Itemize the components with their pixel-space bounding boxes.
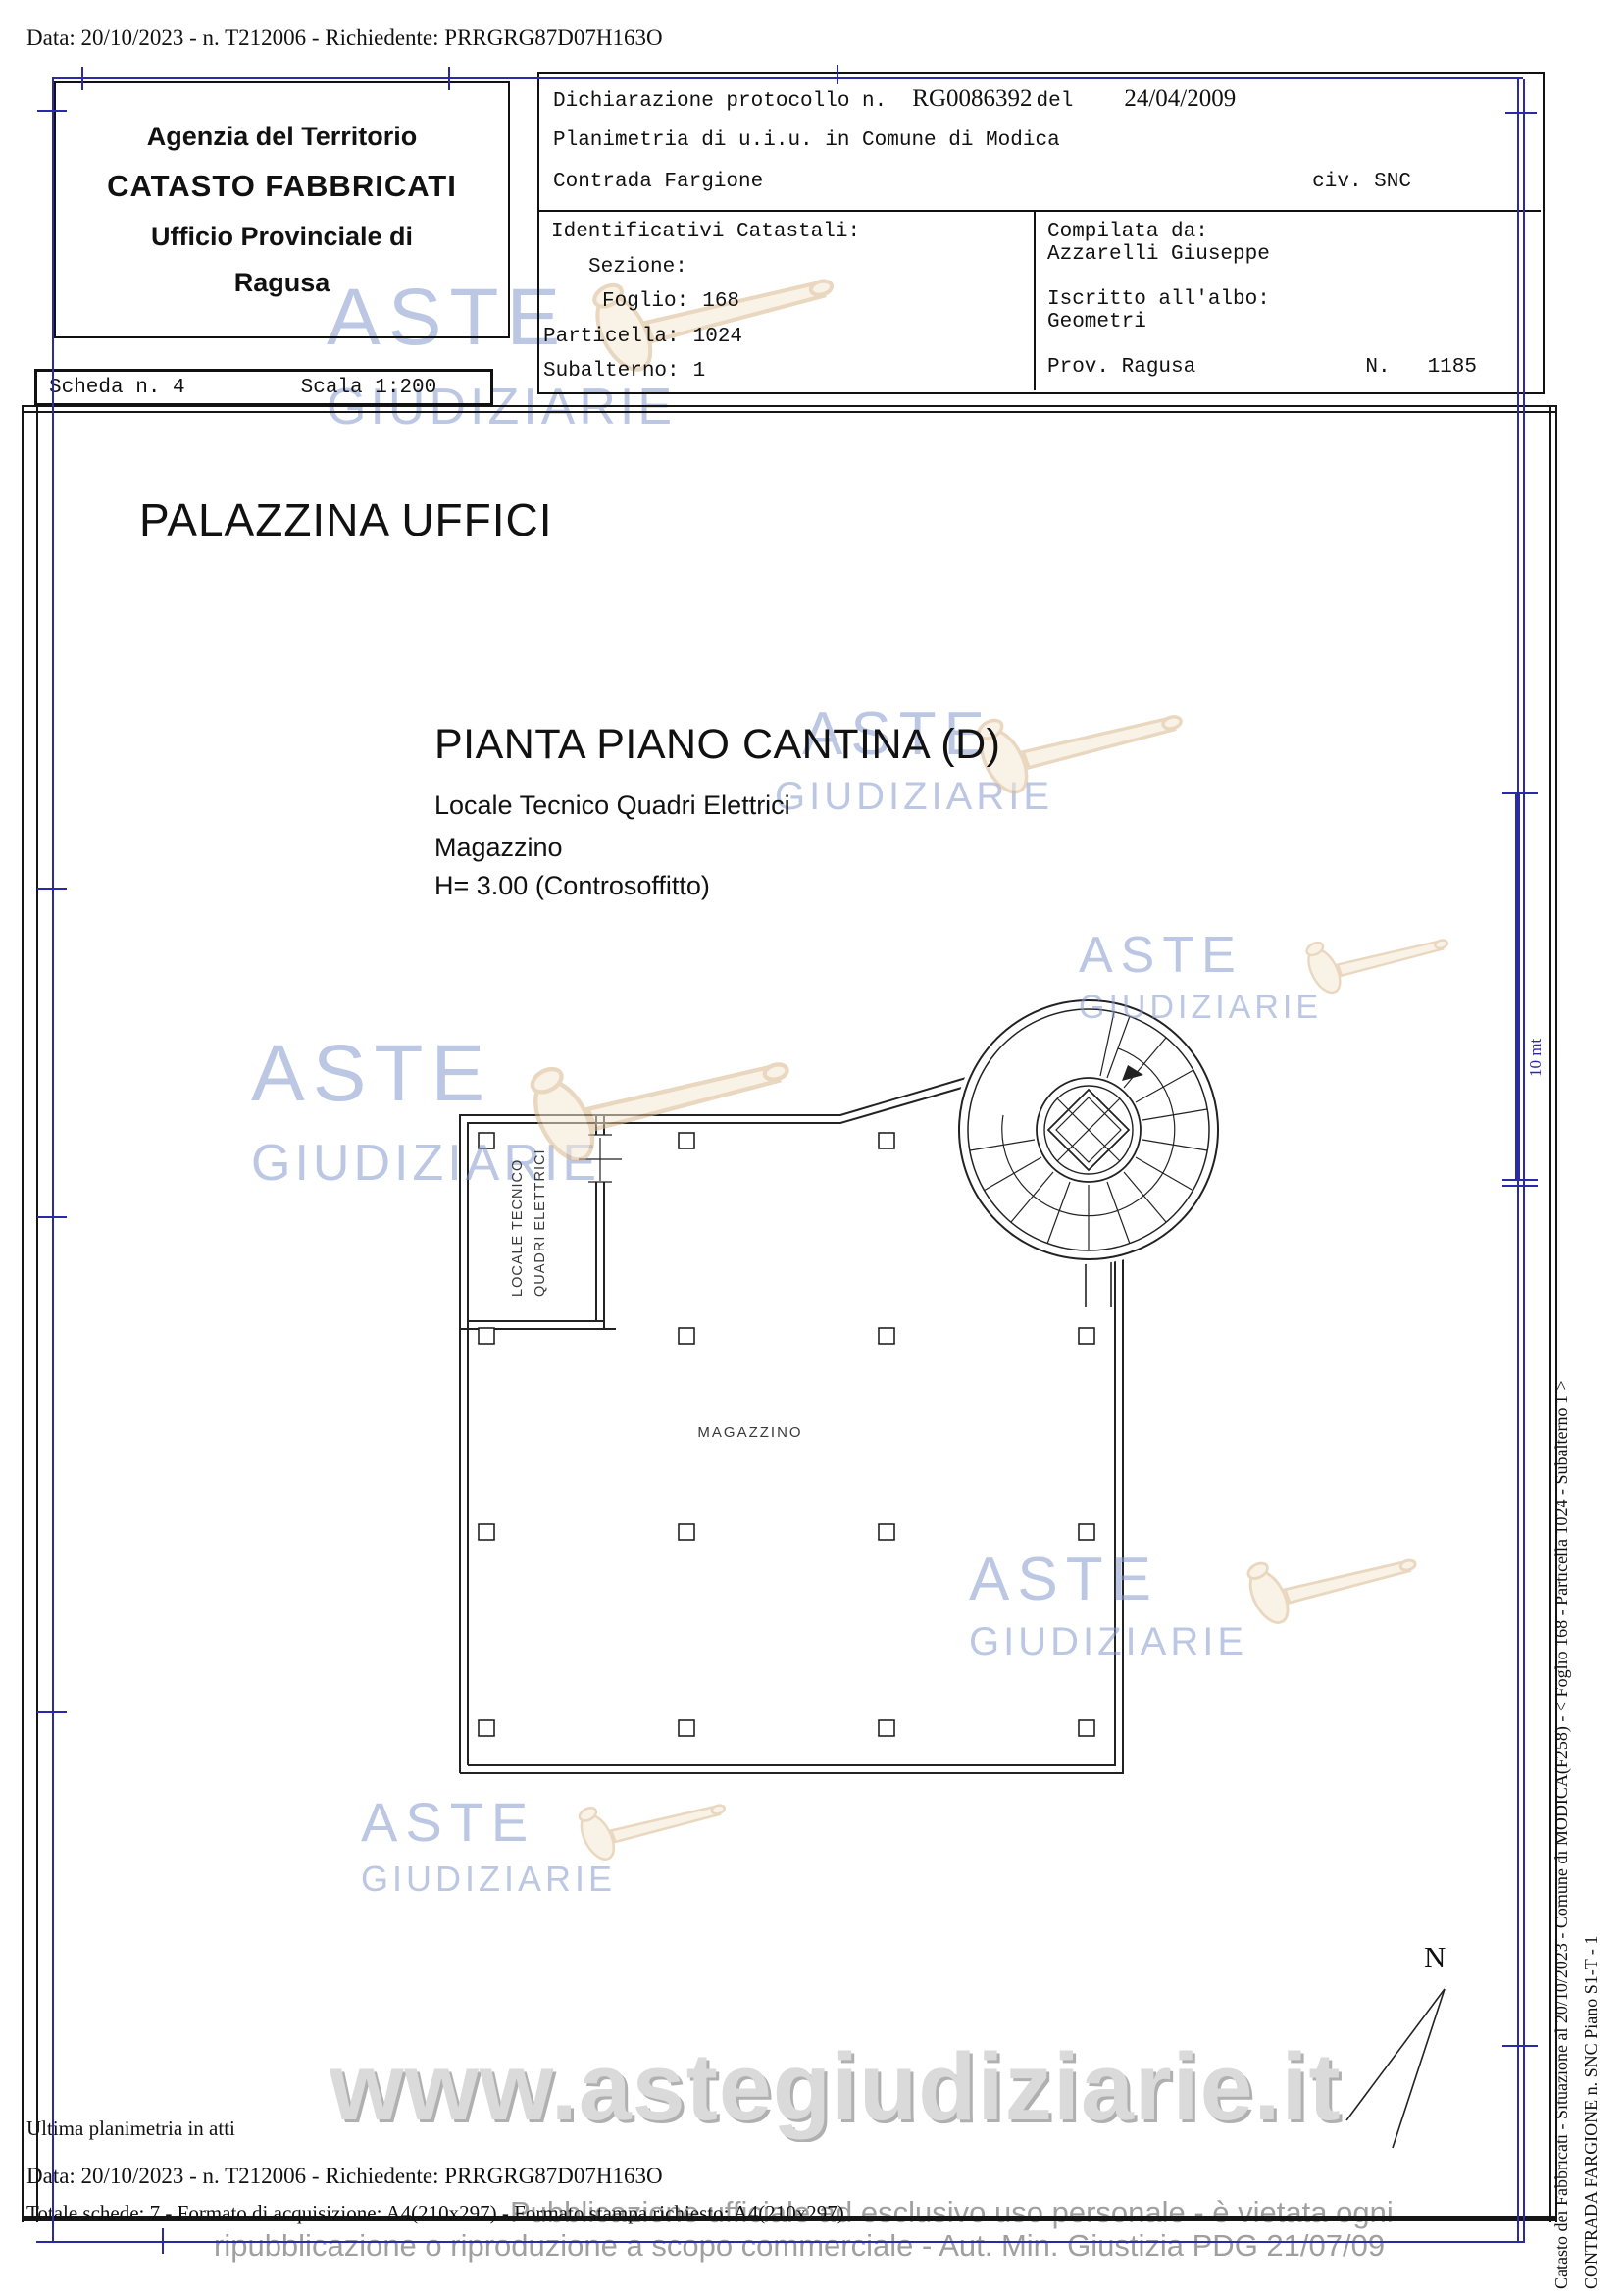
scheda-box: Scheda n. 4 Scala 1:200 (34, 369, 493, 406)
plan-subtitle-2: Magazzino (434, 833, 563, 863)
footer-totale-schede: Totale schede: 7 - Formato di acquisizio… (26, 2201, 844, 2225)
prov-label: Prov. Ragusa (1047, 356, 1195, 379)
catasto-fabbricati-title: CATASTO FABBRICATI (107, 160, 457, 213)
office-province: Ragusa (234, 260, 330, 306)
address-value: Contrada Fargione (553, 171, 763, 193)
frame-top-inner (22, 411, 1555, 413)
office-line: Ufficio Provinciale di (151, 214, 413, 260)
content-layer: Data: 20/10/2023 - n. T212006 - Richiede… (0, 0, 1624, 2296)
protocol-number: RG0086392 (912, 85, 1032, 113)
north-label: N (1424, 1940, 1446, 1975)
scheda-number: Scheda n. 4 (49, 377, 185, 399)
agency-name: Agenzia del Territorio (147, 114, 418, 160)
frame-left-inner (36, 405, 38, 2222)
plan-title: PIANTA PIANO CANTINA (D) (434, 721, 1000, 769)
technical-room-label: LOCALE TECNICO QUADRI ELETTRICI (507, 1148, 552, 1297)
albo-number-label: N. (1365, 356, 1390, 379)
margin-text-contrada: CONTRADA FARGIONE n. SNC Piano S1-T - 1 (1581, 1936, 1601, 2289)
address-row: Contrada Fargione civ. SNC (553, 171, 1524, 193)
subalterno-value: 1 (693, 360, 706, 383)
identifiers-title: Identificativi Catastali: (551, 221, 860, 243)
building-title: PALAZZINA UFFICI (139, 493, 553, 546)
foglio-value: 168 (702, 290, 739, 313)
protocol-row: Dichiarazione protocollo n. RG0086392 de… (553, 85, 1236, 113)
albo-value: Geometri (1047, 311, 1146, 333)
protocol-label: Dichiarazione protocollo n. (553, 90, 887, 113)
protocol-del: del (1037, 90, 1074, 113)
prov-row: Prov. Ragusa N. 1185 (1047, 356, 1528, 379)
plan-subtitle-3: H= 3.00 (Controsoffitto) (434, 871, 710, 901)
particella-value: 1024 (693, 326, 742, 348)
plan-subtitle-1: Locale Tecnico Quadri Elettrici (434, 791, 790, 821)
albo-number-value: 1185 (1428, 356, 1477, 379)
planimetria-row: Planimetria di u.i.u. in Comune di Modic… (553, 129, 1060, 152)
protocol-date: 24/04/2009 (1124, 85, 1236, 113)
subalterno-row: Subalterno:1 (543, 360, 705, 383)
foglio-row: Foglio:168 (602, 290, 739, 313)
declaration-box: Dichiarazione protocollo n. RG0086392 de… (537, 72, 1545, 394)
warehouse-label: MAGAZZINO (682, 1424, 819, 1441)
subalterno-label: Subalterno: (543, 360, 680, 383)
foglio-label: Foglio: (602, 290, 688, 313)
frame-left-outer (22, 405, 24, 2222)
civic-number: civ. SNC (1312, 171, 1411, 193)
albo-label: Iscritto all'albo: (1047, 288, 1270, 311)
cadastral-floor-plan-sheet: ASTE GIUDIZIARIE ASTE GIUDIZIARIE (0, 0, 1624, 2296)
divider (1034, 210, 1036, 390)
footer-request-line: Data: 20/10/2023 - n. T212006 - Richiede… (26, 2164, 663, 2189)
particella-row: Particella:1024 (543, 326, 742, 348)
compilata-name: Azzarelli Giuseppe (1047, 243, 1270, 266)
request-header: Data: 20/10/2023 - n. T212006 - Richiede… (26, 26, 663, 51)
divider (539, 210, 1541, 212)
margin-text-catasto: Catasto dei Fabbricati - Situazione al 2… (1551, 1380, 1572, 2289)
scala: Scala 1:200 (301, 377, 437, 399)
agency-box: Agenzia del Territorio CATASTO FABBRICAT… (54, 81, 510, 338)
compilata-label: Compilata da: (1047, 221, 1208, 243)
footer-ultima-planimetria: Ultima planimetria in atti (26, 2117, 235, 2141)
sezione-row: Sezione: (588, 256, 687, 279)
particella-label: Particella: (543, 326, 680, 348)
